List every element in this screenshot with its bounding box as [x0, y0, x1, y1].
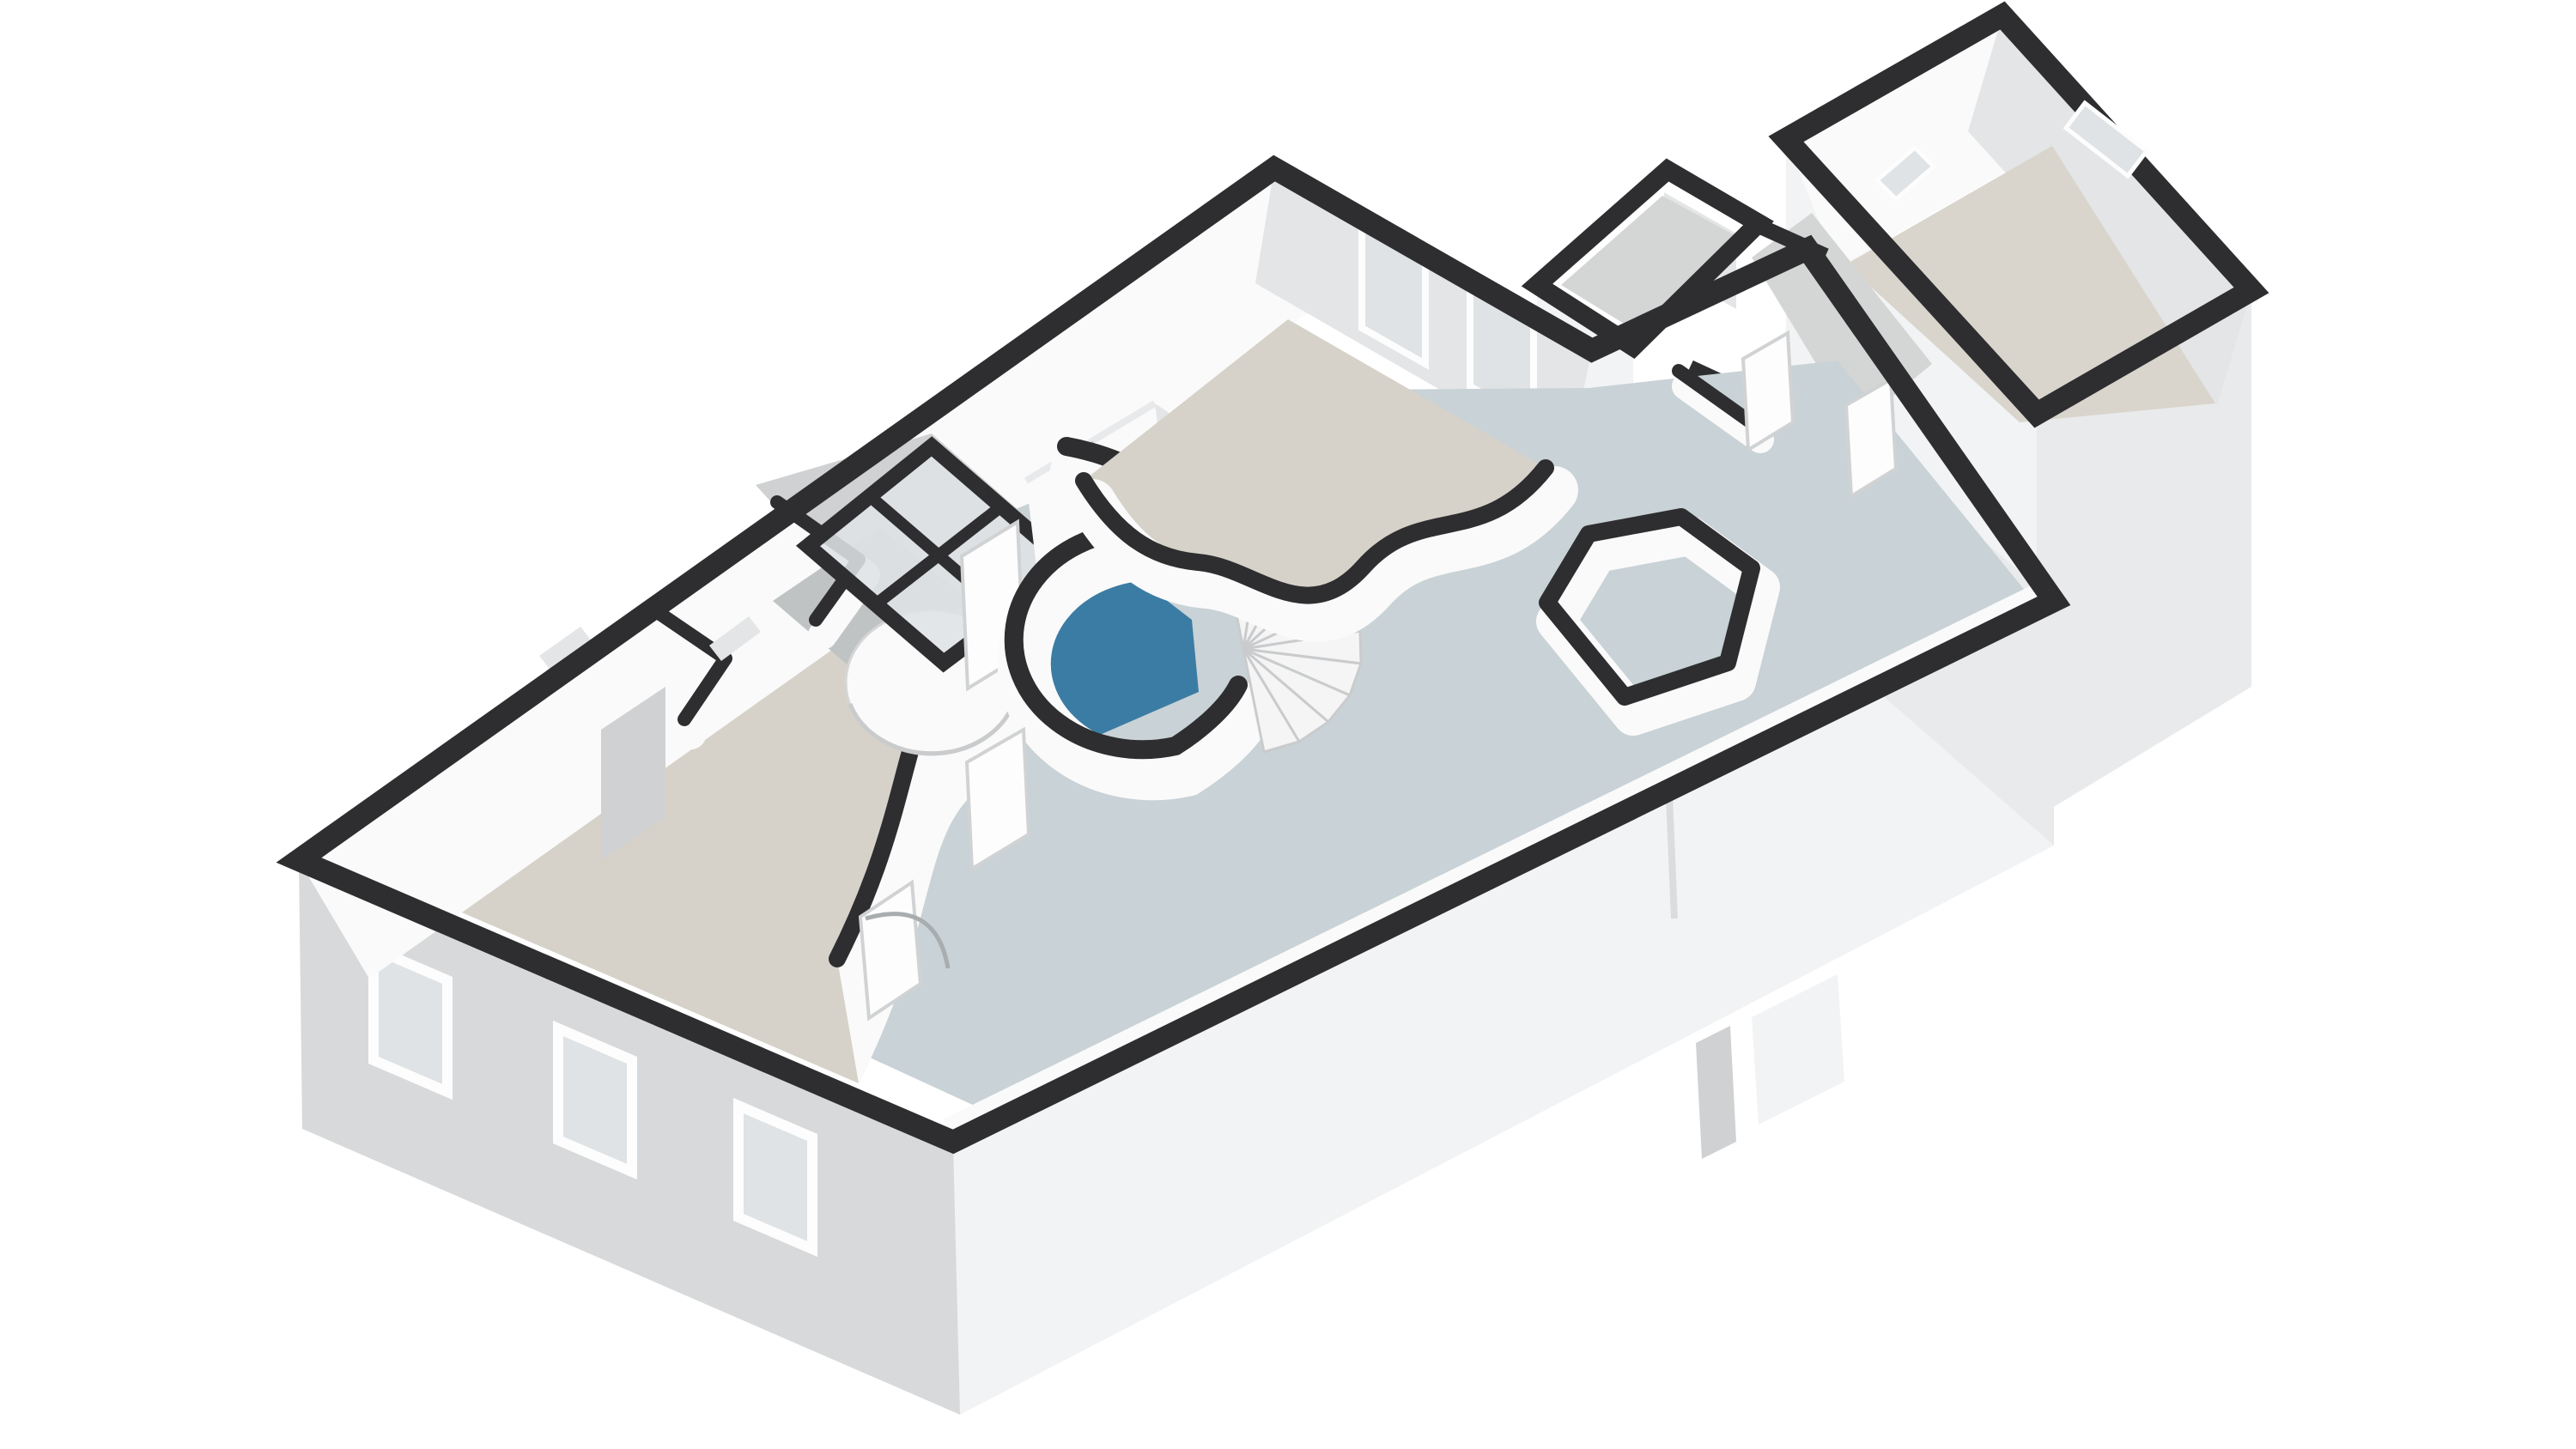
se-facade-stub-white	[1752, 974, 1844, 1125]
se-facade-stub-gray	[1696, 1026, 1736, 1159]
sw-window-3-icon	[738, 1106, 812, 1249]
floorplan-stage	[0, 0, 2576, 1449]
sw-window-1-icon	[374, 949, 447, 1092]
sw-window-2-icon	[558, 1028, 632, 1172]
floorplan-3d-render	[0, 0, 2576, 1449]
main-bar	[299, 168, 2054, 1415]
